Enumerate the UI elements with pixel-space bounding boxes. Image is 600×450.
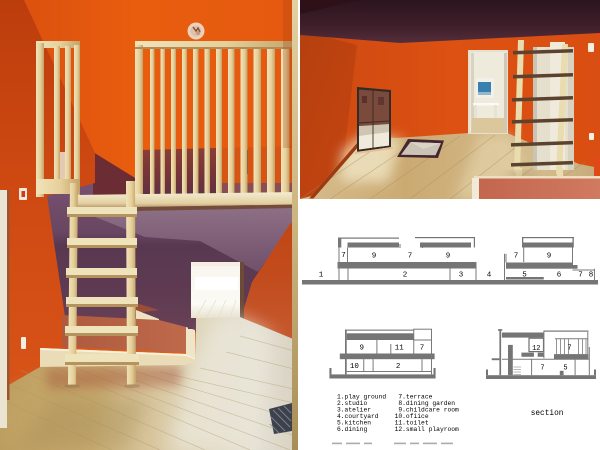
svg-text:7: 7 xyxy=(341,252,346,260)
svg-text:3: 3 xyxy=(459,272,464,280)
svg-text:9: 9 xyxy=(547,253,552,261)
svg-text:10: 10 xyxy=(350,363,360,371)
svg-text:2: 2 xyxy=(396,363,401,371)
svg-text:1: 1 xyxy=(319,272,324,280)
svg-text:section: section xyxy=(531,410,564,418)
svg-text:5: 5 xyxy=(563,365,567,373)
svg-text:6: 6 xyxy=(557,272,562,280)
svg-text:9: 9 xyxy=(359,345,364,353)
svg-text:9: 9 xyxy=(372,253,377,261)
svg-text:7: 7 xyxy=(567,345,571,353)
svg-text:11: 11 xyxy=(395,345,405,353)
svg-text:12.small playroom: 12.small playroom xyxy=(395,426,459,433)
svg-text:2: 2 xyxy=(403,272,408,280)
svg-text:7: 7 xyxy=(408,253,413,261)
svg-text:4: 4 xyxy=(487,272,492,280)
svg-text:9: 9 xyxy=(446,253,451,261)
svg-text:7: 7 xyxy=(420,345,425,353)
svg-text:7: 7 xyxy=(540,365,544,373)
svg-text:7: 7 xyxy=(514,253,519,261)
svg-text:5: 5 xyxy=(522,272,527,280)
svg-text:8: 8 xyxy=(589,272,594,280)
svg-text:12: 12 xyxy=(532,345,540,353)
svg-text:6.dining: 6.dining xyxy=(337,426,367,433)
svg-text:7: 7 xyxy=(578,272,583,280)
